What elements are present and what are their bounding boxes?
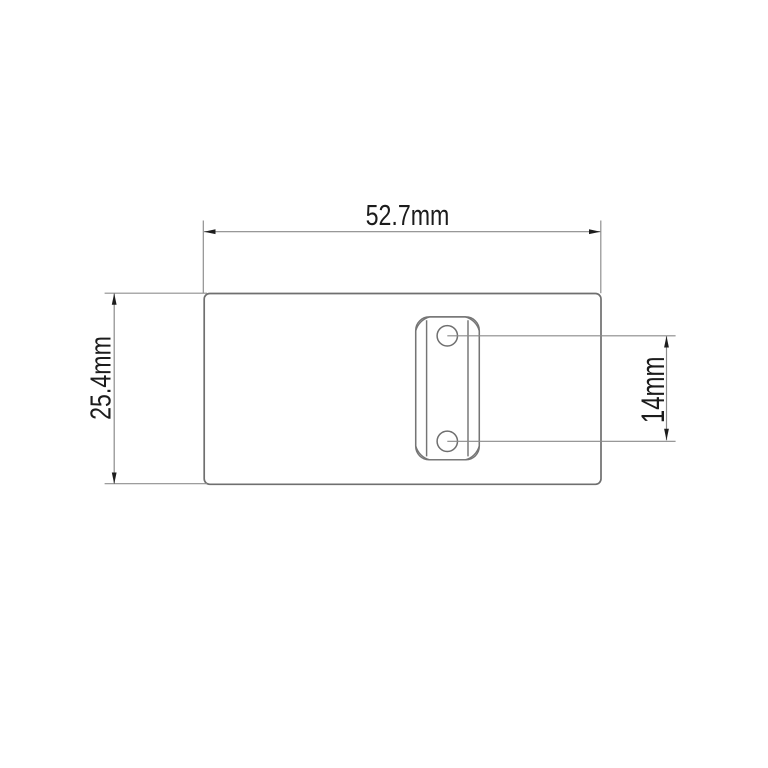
svg-text:52.7mm: 52.7mm [366, 199, 450, 232]
svg-text:25.4mm: 25.4mm [84, 336, 117, 420]
svg-text:14mm: 14mm [634, 356, 670, 423]
